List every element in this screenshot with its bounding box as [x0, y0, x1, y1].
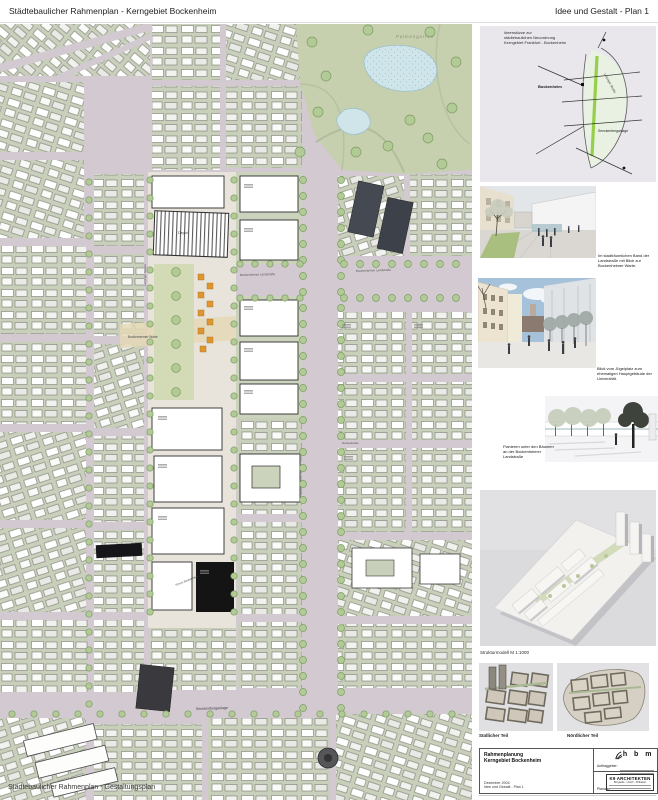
map-overlay-title: Städtebaulicher Rahmenplan - Gestaltungs…	[8, 784, 155, 791]
location-sketch-svg: Bockenheim Senckenberganlage Leipziger S…	[480, 26, 656, 182]
depot-building	[153, 211, 228, 258]
park-label: Palmengarten	[396, 34, 434, 39]
black-building	[196, 562, 234, 612]
hbm-logo: h b m	[614, 751, 654, 774]
model-north-label: Nördlicher Teil	[567, 733, 598, 738]
street-label-leipziger: Leipziger Straße	[143, 264, 147, 286]
sketch-label-senckenberganlage: Senckenberganlage	[598, 129, 628, 133]
rendering-2-caption: Blick vom Jügelplatz zum ehemaligen Haup…	[597, 366, 655, 382]
plan-sheet: Städtebaulicher Rahmenplan - Kerngebiet …	[0, 0, 658, 800]
label-platz: Platz	[166, 253, 173, 257]
planning-cell: Planung: K9 ARCHITEKTEN Borgards . Lösch…	[594, 772, 657, 794]
model-south-label: Südlicher Teil	[479, 733, 508, 738]
sketch-label-bockenheim: Bockenheim	[538, 84, 562, 89]
model-caption: Strukturmodell M 1:1000	[480, 650, 529, 655]
sketch-title: Ideenskizze zur städtebaulichen Neuordnu…	[504, 30, 566, 46]
model-north-image	[557, 663, 649, 731]
location-sketch-panel: Ideenskizze zur städtebaulichen Neuordnu…	[480, 26, 656, 182]
rendering-1-image	[480, 186, 596, 258]
label-depot: Depot	[178, 231, 188, 235]
structure-model-image	[480, 490, 656, 646]
project-date-plan: Dezember 2004 Idee und Gestalt - Plan 1	[484, 781, 524, 790]
city-map-svg: Palmengarten Bockenheimer Landstraße Boc…	[0, 24, 472, 800]
street-label-dantestrasse: Dantestraße	[342, 441, 359, 445]
pond-small	[337, 108, 371, 134]
sheet-title-right: Idee und Gestalt - Plan 1	[555, 6, 649, 16]
rendering-3-caption: Flanieren unter den Bäumen an der Bocken…	[503, 444, 559, 460]
label-bockenheimer-warte: Bockenheimer Warte	[128, 335, 158, 339]
sheet-title-left: Städtebaulicher Rahmenplan - Kerngebiet …	[9, 6, 216, 16]
title-block-right-column: Auftraggeber: h b m Planung: K9 ARCHITEK…	[594, 749, 657, 793]
rendering-2-image	[478, 278, 596, 368]
title-block-project-cell: Rahmenplanung Kerngebiet Bockenheim Deze…	[480, 749, 594, 793]
project-title: Rahmenplanung Kerngebiet Bockenheim	[484, 752, 541, 765]
master-plan-map: Palmengarten Bockenheimer Landstraße Boc…	[0, 24, 472, 800]
hbm-logo-icon	[614, 751, 623, 760]
model-south-image	[479, 663, 553, 731]
architect-logo: K9 ARCHITEKTEN Borgards . Lösch . Piriba…	[606, 774, 654, 791]
client-cell: Auftraggeber: h b m	[594, 749, 657, 772]
rendering-3-image	[545, 396, 658, 462]
sidebar-bottom-rule	[479, 795, 656, 796]
sheet-header: Städtebaulicher Rahmenplan - Kerngebiet …	[0, 0, 658, 23]
rendering-1-caption: Im stadträumlichen Band der Landstraße m…	[598, 253, 654, 269]
title-block: Rahmenplanung Kerngebiet Bockenheim Deze…	[479, 748, 658, 794]
